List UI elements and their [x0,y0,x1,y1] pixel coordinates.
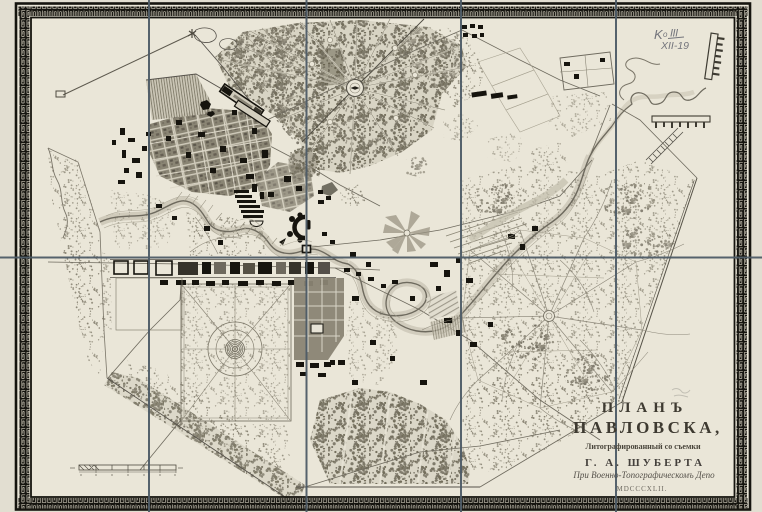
svg-text:MDCCCXLII.: MDCCCXLII. [616,485,667,493]
svg-text:XII-19: XII-19 [660,40,689,52]
svg-text:o: o [663,30,668,39]
svg-text:При Военно-Топографическомъ Де: При Военно-Топографическомъ Депо [572,470,715,480]
svg-text:Г. А. ШУБЕРТА: Г. А. ШУБЕРТА [585,457,705,469]
svg-text:ПЛАНЪ: ПЛАНЪ [602,400,689,416]
svg-text:ПАВЛОВСКА,: ПАВЛОВСКА, [573,418,723,437]
svg-text:Литографированный со съемки: Литографированный со съемки [585,442,701,451]
